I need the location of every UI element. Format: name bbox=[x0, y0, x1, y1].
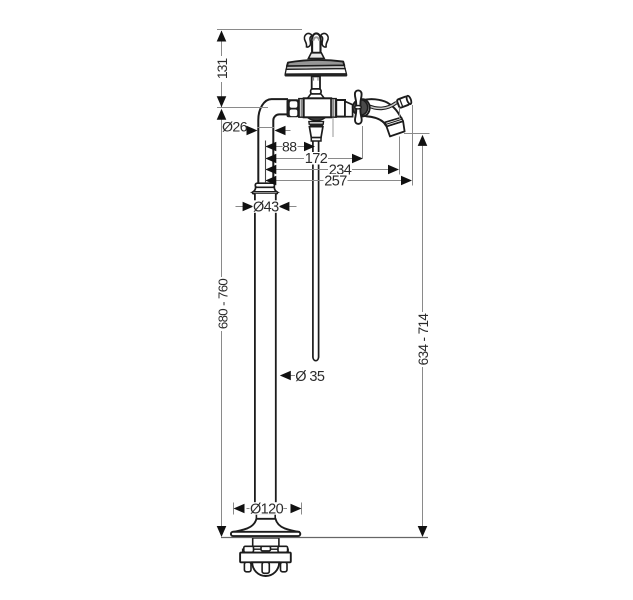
svg-text:257: 257 bbox=[324, 173, 347, 189]
svg-text:Ø43: Ø43 bbox=[253, 200, 279, 216]
svg-text:172: 172 bbox=[305, 151, 328, 167]
svg-text:680 - 760: 680 - 760 bbox=[215, 279, 230, 330]
svg-text:Ø120: Ø120 bbox=[250, 502, 284, 518]
svg-text:88: 88 bbox=[282, 138, 297, 154]
svg-text:Ø 35: Ø 35 bbox=[295, 369, 325, 385]
svg-text:634 - 714: 634 - 714 bbox=[416, 313, 431, 366]
svg-text:131: 131 bbox=[214, 58, 230, 80]
svg-text:Ø26: Ø26 bbox=[222, 120, 248, 136]
